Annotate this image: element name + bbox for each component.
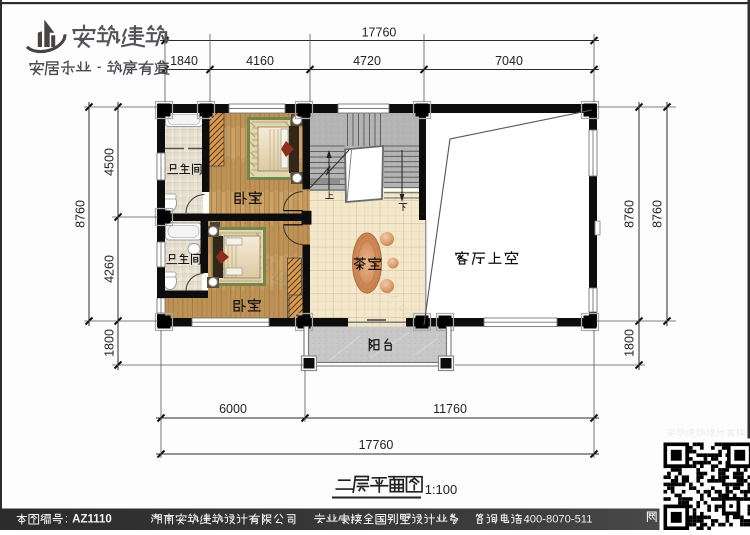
svg-text:8760: 8760 xyxy=(651,200,665,228)
svg-text:400-8070-511: 400-8070-511 xyxy=(524,514,593,526)
svg-text:11760: 11760 xyxy=(433,402,467,416)
svg-text:1800: 1800 xyxy=(103,329,117,357)
svg-text:AZ1110: AZ1110 xyxy=(72,514,112,526)
svg-text:4500: 4500 xyxy=(103,148,117,176)
svg-text:17760: 17760 xyxy=(359,438,394,452)
svg-text:1:100: 1:100 xyxy=(425,482,458,497)
svg-text:1840: 1840 xyxy=(170,54,198,68)
svg-text:8760: 8760 xyxy=(74,200,88,228)
svg-text:17760: 17760 xyxy=(362,26,397,40)
svg-text:8760: 8760 xyxy=(623,200,637,228)
svg-text:6000: 6000 xyxy=(219,402,247,416)
svg-text:7040: 7040 xyxy=(495,54,523,68)
svg-text:4160: 4160 xyxy=(246,54,274,68)
svg-text:4260: 4260 xyxy=(103,255,117,283)
svg-text::: : xyxy=(65,514,68,526)
svg-text:1800: 1800 xyxy=(623,329,637,357)
svg-text:4720: 4720 xyxy=(353,54,381,68)
